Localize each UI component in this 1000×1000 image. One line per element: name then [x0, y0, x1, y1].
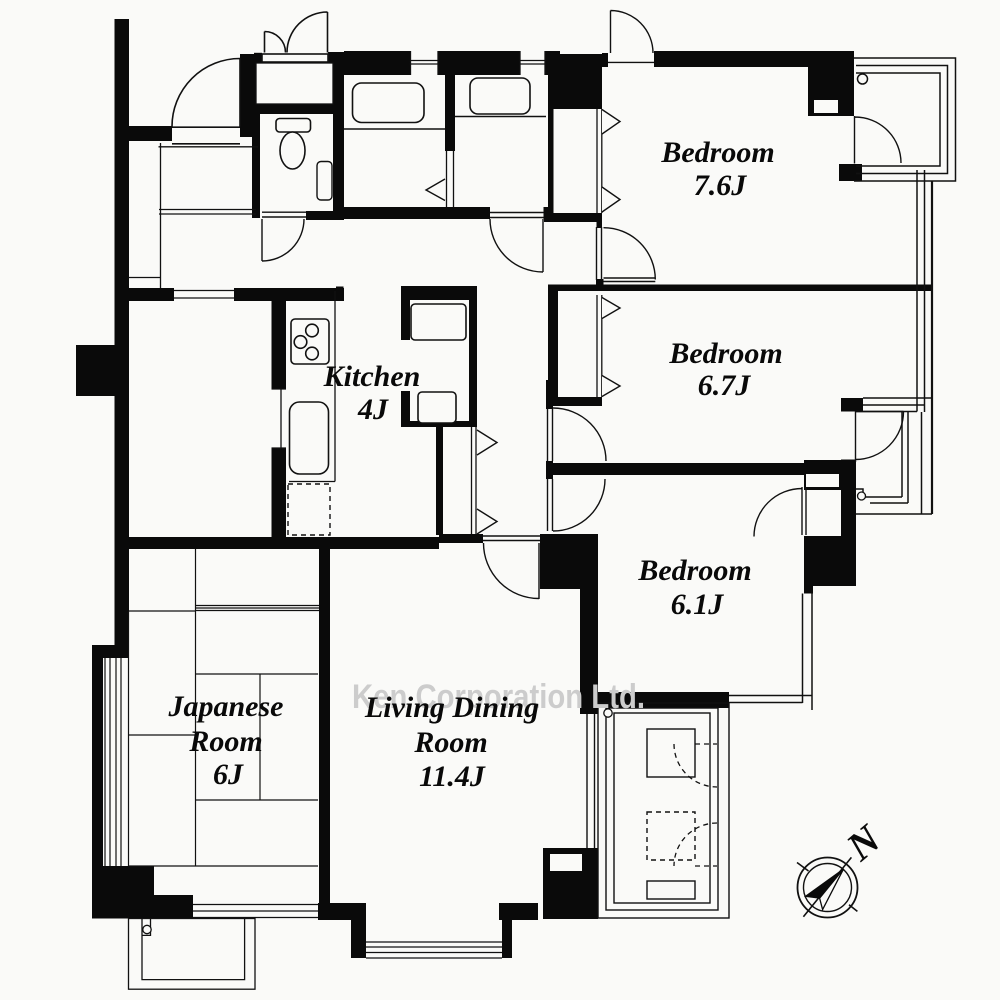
- svg-text:6.1J: 6.1J: [671, 588, 725, 621]
- svg-text:Kitchen: Kitchen: [323, 360, 421, 393]
- svg-text:Room: Room: [413, 726, 487, 759]
- svg-text:Living Dining: Living Dining: [364, 691, 539, 724]
- svg-text:Japanese: Japanese: [168, 690, 284, 723]
- svg-text:7.6J: 7.6J: [694, 169, 748, 202]
- svg-text:Bedroom: Bedroom: [637, 554, 751, 587]
- svg-text:Bedroom: Bedroom: [660, 136, 774, 169]
- svg-text:4J: 4J: [357, 393, 389, 426]
- svg-text:Room: Room: [188, 725, 262, 758]
- svg-text:11.4J: 11.4J: [419, 760, 486, 793]
- svg-text:Bedroom: Bedroom: [668, 337, 782, 370]
- svg-text:6J: 6J: [213, 758, 244, 791]
- svg-text:6.7J: 6.7J: [698, 369, 752, 402]
